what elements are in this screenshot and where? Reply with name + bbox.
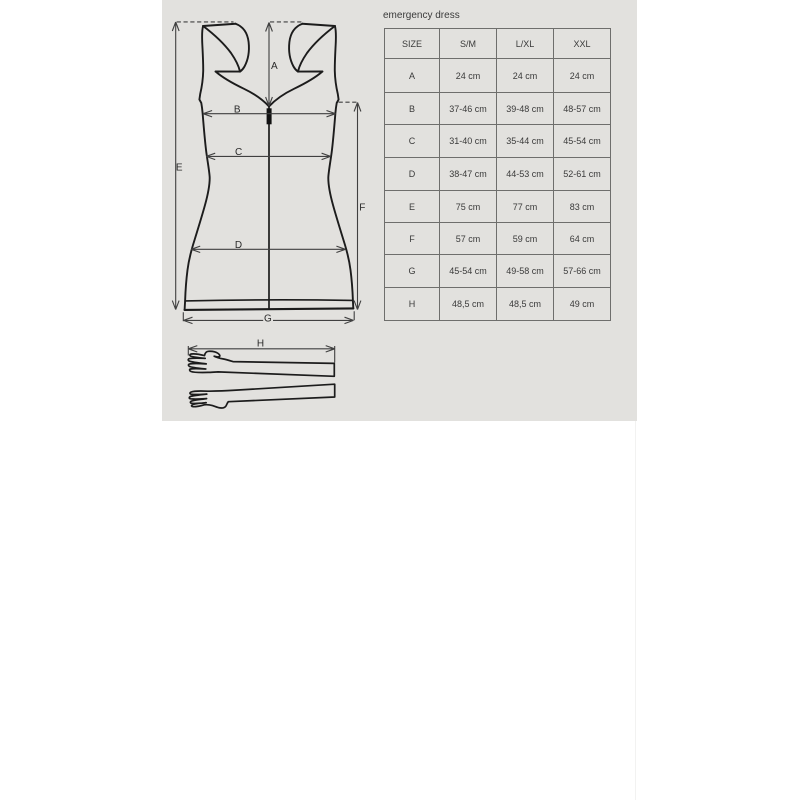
svg-text:F: F [359, 203, 365, 214]
svg-text:G: G [264, 313, 272, 324]
svg-text:H: H [257, 338, 264, 349]
svg-text:E: E [176, 162, 183, 173]
svg-text:B: B [234, 105, 241, 116]
svg-text:C: C [235, 147, 242, 158]
svg-text:A: A [271, 61, 278, 72]
svg-text:D: D [235, 240, 242, 251]
